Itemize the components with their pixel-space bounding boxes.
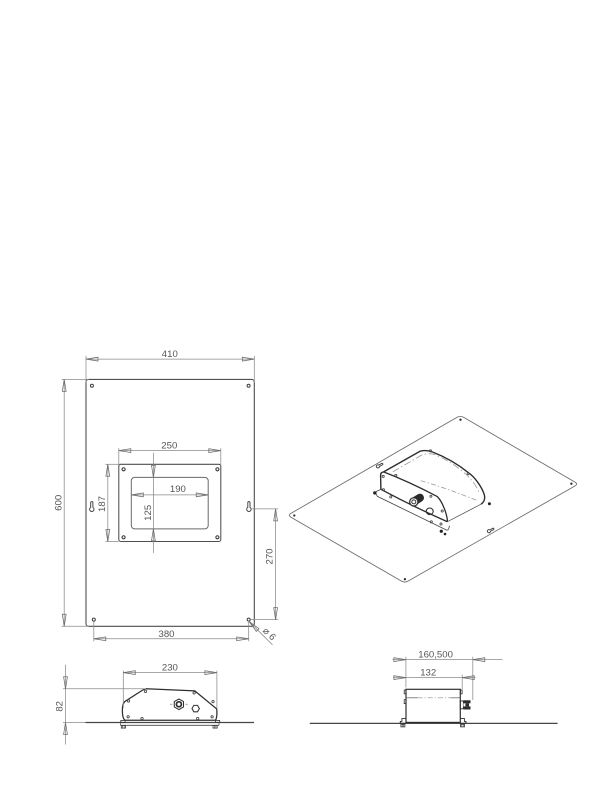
svg-text:600: 600 [53, 495, 64, 511]
svg-text:190: 190 [170, 484, 186, 495]
svg-text:82: 82 [55, 701, 66, 712]
svg-text:270: 270 [265, 548, 276, 564]
svg-text:230: 230 [162, 663, 178, 674]
svg-text:⌀ 6: ⌀ 6 [260, 626, 278, 644]
svg-text:410: 410 [162, 349, 178, 360]
svg-text:160,500: 160,500 [418, 649, 453, 660]
svg-text:132: 132 [420, 667, 436, 678]
svg-text:187: 187 [97, 496, 108, 512]
svg-text:380: 380 [158, 629, 174, 640]
svg-text:250: 250 [161, 440, 177, 451]
svg-text:125: 125 [143, 505, 154, 521]
